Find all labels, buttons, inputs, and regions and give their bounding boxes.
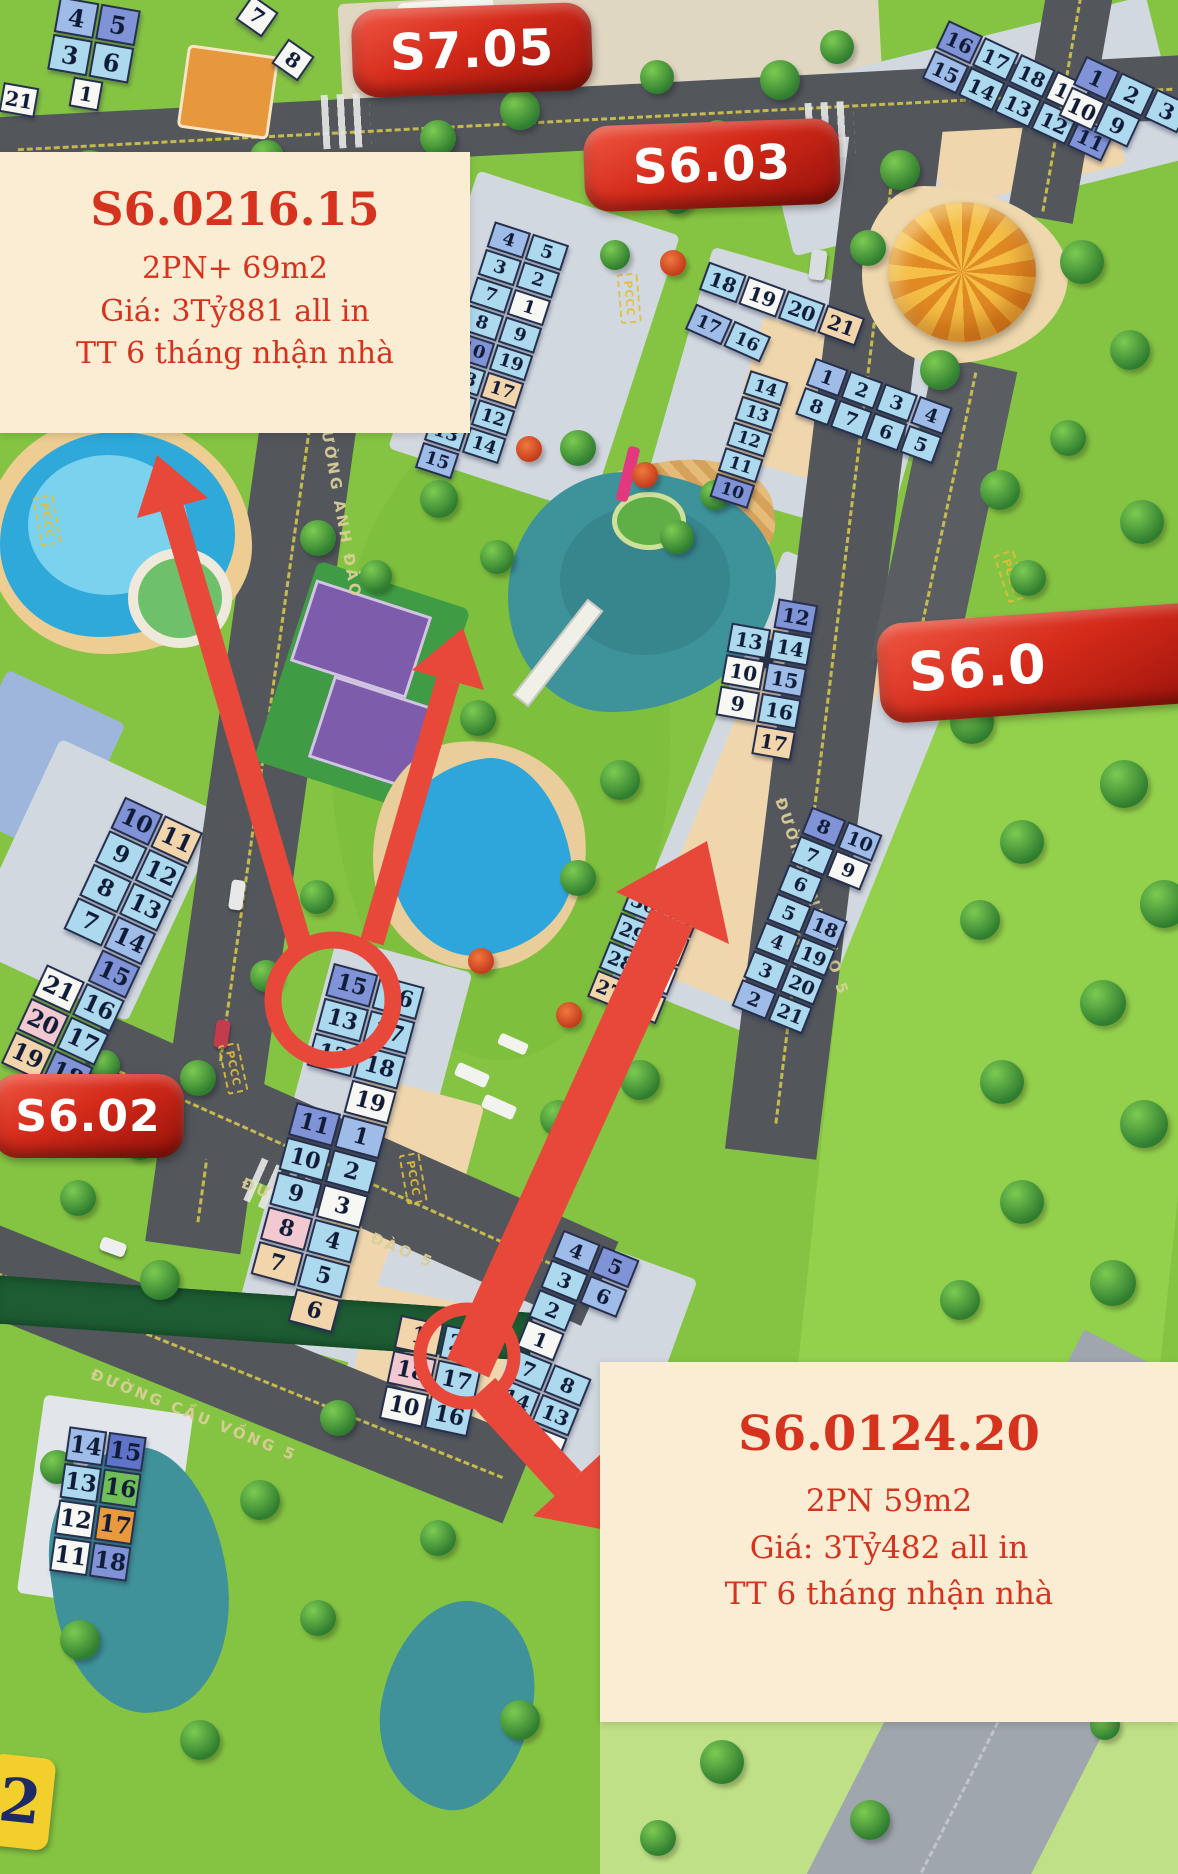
building-units-grid: 21 bbox=[0, 81, 40, 119]
tree-icon bbox=[640, 60, 674, 94]
flower-bed bbox=[632, 462, 658, 488]
tree-icon bbox=[560, 430, 596, 466]
tree-icon bbox=[240, 1480, 280, 1520]
tree-icon bbox=[1050, 420, 1086, 456]
tree-icon bbox=[250, 960, 282, 992]
tree-icon bbox=[600, 240, 630, 270]
tree-icon bbox=[620, 1060, 660, 1100]
unit-cell: 1 bbox=[69, 77, 104, 112]
tree-icon bbox=[360, 560, 392, 592]
tree-icon bbox=[1120, 1100, 1168, 1148]
tree-icon bbox=[850, 1800, 890, 1840]
unit-cell: 16 bbox=[424, 1395, 474, 1437]
tree-icon bbox=[420, 1520, 456, 1556]
tree-icon bbox=[980, 1060, 1024, 1104]
tree-icon bbox=[540, 1100, 576, 1136]
tree-icon bbox=[420, 120, 456, 156]
listing-terms: TT 6 tháng nhận nhà bbox=[600, 1571, 1178, 1618]
tree-icon bbox=[500, 1700, 540, 1740]
tree-icon bbox=[850, 230, 886, 266]
unit-cell: 6 bbox=[89, 41, 135, 83]
tree-icon bbox=[920, 350, 960, 390]
basketball-court bbox=[177, 44, 280, 140]
tree-icon bbox=[60, 1180, 96, 1216]
unit-cell: 5 bbox=[95, 4, 141, 46]
unit-cell: 17 bbox=[94, 1505, 137, 1545]
tree-icon bbox=[180, 1720, 220, 1760]
flower-bed bbox=[556, 1002, 582, 1028]
tree-icon bbox=[140, 1260, 180, 1300]
crosswalk bbox=[321, 93, 372, 149]
unit-cell: 21 bbox=[0, 82, 39, 118]
listing-price: Giá: 3Tỷ482 all in bbox=[600, 1525, 1178, 1572]
tree-icon bbox=[300, 880, 334, 914]
tree-icon bbox=[480, 540, 514, 574]
masterplan-map: ĐƯỜNG ANH ĐÀO ĐƯỜNG ANH ĐÀO 5 ĐƯỜNG ANH … bbox=[0, 0, 1178, 1874]
unit-cell: 12 bbox=[54, 1500, 97, 1540]
listing-card-s6012420: S6.0124.20 2PN 59m2 Giá: 3Tỷ482 all in T… bbox=[600, 1362, 1178, 1722]
tree-icon bbox=[820, 30, 854, 64]
tree-icon bbox=[640, 1820, 676, 1856]
tree-icon bbox=[300, 1600, 336, 1636]
unit-cell: 13 bbox=[60, 1463, 103, 1503]
pool-lounger bbox=[454, 1062, 491, 1089]
listing-terms: TT 6 tháng nhận nhà bbox=[0, 333, 470, 376]
tree-icon bbox=[1090, 1260, 1136, 1306]
pool-lounger bbox=[481, 1094, 518, 1121]
building-label-s705: S7.05 bbox=[351, 2, 594, 98]
unit-cell: 17 bbox=[751, 724, 796, 760]
fire-lane-marker: PCCC bbox=[616, 273, 641, 325]
unit-cell: 16 bbox=[99, 1468, 142, 1508]
tree-icon bbox=[660, 520, 694, 554]
building-label-s602: S6.02 bbox=[0, 1074, 184, 1158]
listing-code: S6.0124.20 bbox=[600, 1406, 1178, 1462]
listing-price: Giá: 3Tỷ881 all in bbox=[0, 291, 470, 334]
unit-cell: 8 bbox=[271, 39, 314, 82]
unit-cell: 18 bbox=[89, 1542, 132, 1582]
building-units-grid: 8 bbox=[270, 37, 316, 83]
tree-icon bbox=[1100, 760, 1148, 808]
building-units-grid: 4536 bbox=[46, 0, 142, 85]
listing-card-s6021615: S6.0216.15 2PN+ 69m2 Giá: 3Tỷ881 all in … bbox=[0, 152, 470, 433]
tree-icon bbox=[320, 1400, 356, 1436]
tree-icon bbox=[960, 900, 1000, 940]
tree-icon bbox=[500, 90, 540, 130]
unit-cell: 15 bbox=[104, 1432, 147, 1472]
tree-icon bbox=[300, 520, 336, 556]
tree-icon bbox=[1060, 240, 1104, 284]
tree-icon bbox=[1120, 500, 1164, 544]
unit-cell: 11 bbox=[49, 1536, 92, 1576]
tree-icon bbox=[1080, 980, 1126, 1026]
tree-icon bbox=[1000, 1180, 1044, 1224]
tree-icon bbox=[940, 1280, 980, 1320]
tree-icon bbox=[880, 150, 920, 190]
unit-cell: 4 bbox=[54, 0, 100, 39]
tree-icon bbox=[700, 1740, 744, 1784]
flower-bed bbox=[468, 948, 494, 974]
car bbox=[98, 1236, 127, 1258]
listing-code: S6.0216.15 bbox=[0, 182, 470, 236]
listing-spec: 2PN 59m2 bbox=[600, 1478, 1178, 1525]
flower-bed bbox=[516, 436, 542, 462]
building-units-grid: 7 bbox=[234, 0, 280, 39]
unit-cell: 10 bbox=[379, 1385, 429, 1427]
flower-bed bbox=[660, 250, 686, 276]
tree-icon bbox=[1000, 820, 1044, 864]
car bbox=[808, 249, 828, 281]
building-units-grid: 1 bbox=[67, 75, 104, 112]
unit-cell: 14 bbox=[65, 1426, 108, 1466]
tree-icon bbox=[420, 480, 458, 518]
tree-icon bbox=[760, 60, 800, 100]
tree-icon bbox=[980, 470, 1020, 510]
lawn-circle bbox=[128, 548, 232, 648]
tree-icon bbox=[600, 760, 640, 800]
tree-icon bbox=[60, 1620, 100, 1660]
building-label-s603: S6.03 bbox=[583, 118, 842, 213]
tree-icon bbox=[1110, 330, 1150, 370]
unit-cell: 3 bbox=[47, 34, 93, 76]
corner-label-partial: 2 bbox=[0, 1753, 57, 1851]
tree-icon bbox=[560, 860, 596, 896]
tree-icon bbox=[180, 1060, 216, 1096]
golden-dome bbox=[888, 202, 1036, 342]
tree-icon bbox=[1010, 560, 1046, 596]
listing-spec: 2PN+ 69m2 bbox=[0, 248, 470, 291]
unit-cell: 7 bbox=[235, 0, 278, 37]
tree-icon bbox=[460, 700, 496, 736]
